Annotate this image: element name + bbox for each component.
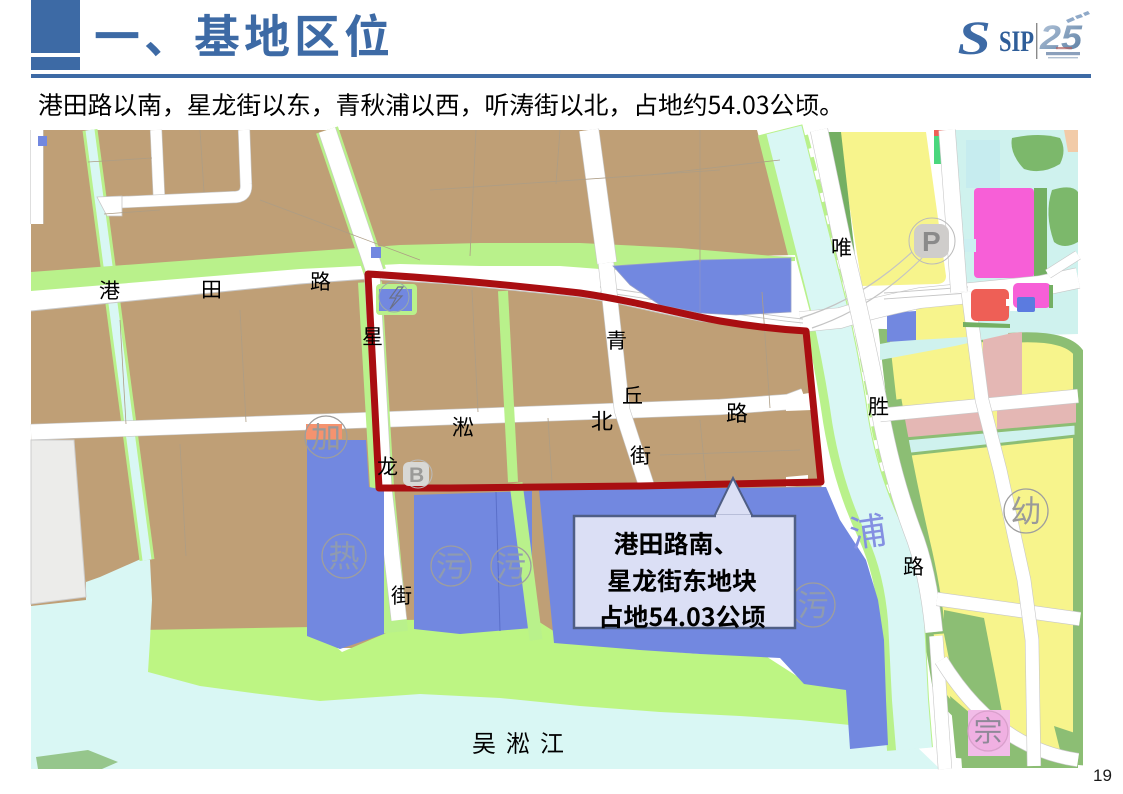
svg-text:B: B [409,464,424,487]
svg-text:P: P [922,226,941,257]
